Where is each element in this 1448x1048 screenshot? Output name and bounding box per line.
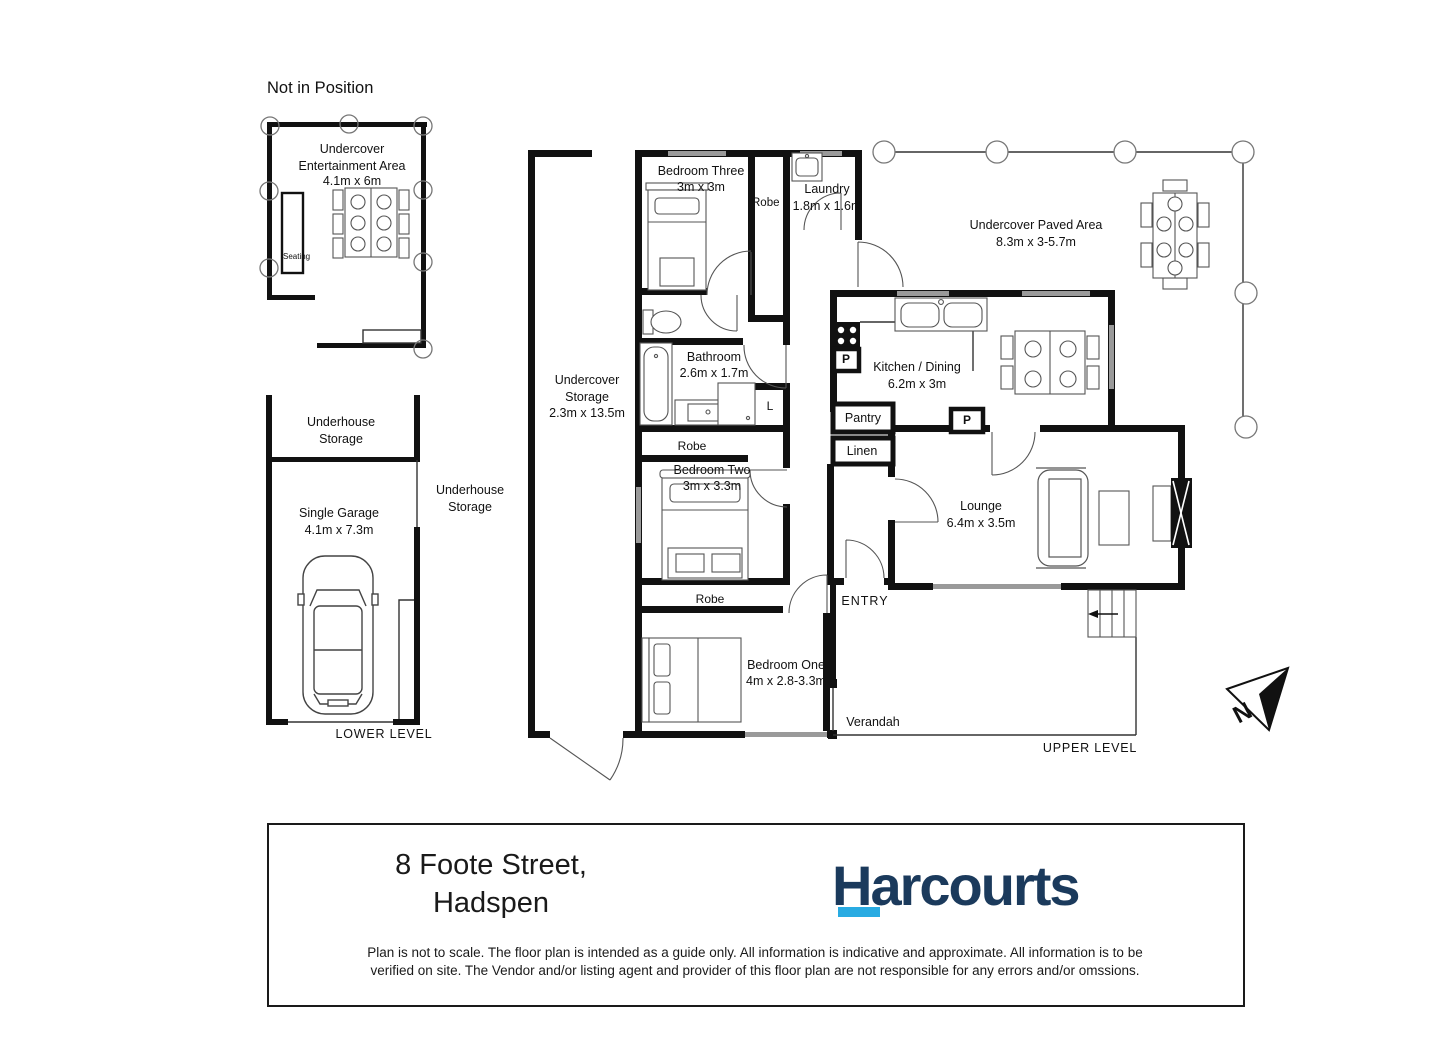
paved-area-dims: 8.3m x 3-5.7m bbox=[996, 235, 1076, 250]
bedroom-three-dims: 3m x 3m bbox=[677, 180, 725, 195]
stairs bbox=[1088, 590, 1136, 637]
robe-bed1-label: Robe bbox=[696, 592, 725, 607]
laundry-sink bbox=[792, 153, 822, 181]
harcourts-logo-underline bbox=[838, 907, 880, 917]
pantry-abbr1-label: P bbox=[842, 352, 850, 367]
pantry-label: Pantry bbox=[845, 411, 881, 426]
garage-label: Single Garage bbox=[299, 506, 379, 521]
robe-bed2-label: Robe bbox=[678, 439, 707, 454]
linen-cupboard-label: L bbox=[767, 399, 774, 414]
floorplan-page: N Not in Position Undercover Entertainme… bbox=[0, 0, 1448, 1048]
entertainment-step bbox=[363, 330, 421, 343]
laundry-dims: 1.8m x 1.6m bbox=[793, 199, 862, 214]
bed-three bbox=[646, 183, 708, 290]
underhouse-storage-top-label: Underhouse Storage bbox=[299, 414, 383, 447]
entertainment-table bbox=[333, 188, 409, 258]
entertainment-area-label: Undercover Entertainment Area bbox=[284, 141, 420, 174]
lower-level-label: LOWER LEVEL bbox=[335, 727, 432, 742]
bedroom-one-dims: 4m x 2.8-3.3m bbox=[746, 674, 826, 689]
undercover-storage-label: Undercover Storage bbox=[537, 372, 637, 405]
bed-one bbox=[642, 638, 741, 722]
bathroom-label: Bathroom bbox=[687, 350, 741, 365]
property-address: 8 Foote Street, Hadspen bbox=[291, 846, 691, 922]
disclaimer-text: Plan is not to scale. The floor plan is … bbox=[277, 944, 1233, 980]
garage-dims: 4.1m x 7.3m bbox=[305, 523, 374, 538]
disclaimer-line2: verified on site. The Vendor and/or list… bbox=[277, 962, 1233, 980]
paved-area-label: Undercover Paved Area bbox=[970, 218, 1103, 233]
undercover-storage-dims: 2.3m x 13.5m bbox=[549, 406, 625, 421]
tv-unit bbox=[1153, 478, 1192, 548]
door-arcs bbox=[550, 193, 1035, 780]
lounge-dims: 6.4m x 3.5m bbox=[947, 516, 1016, 531]
linen-label: Linen bbox=[847, 444, 878, 459]
seating-label: Seating bbox=[283, 249, 310, 264]
bedroom-two-dims: 3m x 3.3m bbox=[683, 479, 741, 494]
kitchen-dining-dims: 6.2m x 3m bbox=[888, 377, 946, 392]
pantry-abbr2-label: P bbox=[963, 413, 971, 428]
verandah-label: Verandah bbox=[846, 715, 900, 730]
kitchen-sink bbox=[895, 298, 987, 331]
bathtub bbox=[640, 343, 672, 425]
car bbox=[298, 556, 378, 714]
underhouse-storage-side-label: Underhouse Storage bbox=[428, 482, 512, 515]
coffee-table bbox=[1099, 491, 1129, 545]
disclaimer-line1: Plan is not to scale. The floor plan is … bbox=[277, 944, 1233, 962]
kitchen-dining-label: Kitchen / Dining bbox=[873, 360, 961, 375]
address-line2: Hadspen bbox=[291, 884, 691, 922]
shower bbox=[718, 383, 755, 425]
entertainment-area-dims: 4.1m x 6m bbox=[323, 174, 381, 189]
dining-table bbox=[1001, 331, 1099, 394]
lounge-label: Lounge bbox=[960, 499, 1002, 514]
entry-label: ENTRY bbox=[841, 594, 888, 609]
upper-level-label: UPPER LEVEL bbox=[1043, 741, 1137, 756]
bedroom-three-label: Bedroom Three bbox=[658, 164, 745, 179]
outdoor-table bbox=[1141, 180, 1209, 289]
laundry-label: Laundry bbox=[804, 182, 849, 197]
bedroom-one-label: Bedroom One bbox=[747, 658, 825, 673]
north-compass: N bbox=[1227, 668, 1288, 730]
bathroom-dims: 2.6m x 1.7m bbox=[680, 366, 749, 381]
toilet bbox=[643, 310, 681, 334]
not-in-position-title: Not in Position bbox=[267, 81, 373, 96]
stove bbox=[833, 322, 860, 348]
sofa bbox=[1036, 468, 1088, 568]
bedroom-two-label: Bedroom Two bbox=[674, 463, 751, 478]
address-line1: 8 Foote Street, bbox=[291, 846, 691, 884]
robe-bed3-label: Robe bbox=[752, 196, 780, 211]
